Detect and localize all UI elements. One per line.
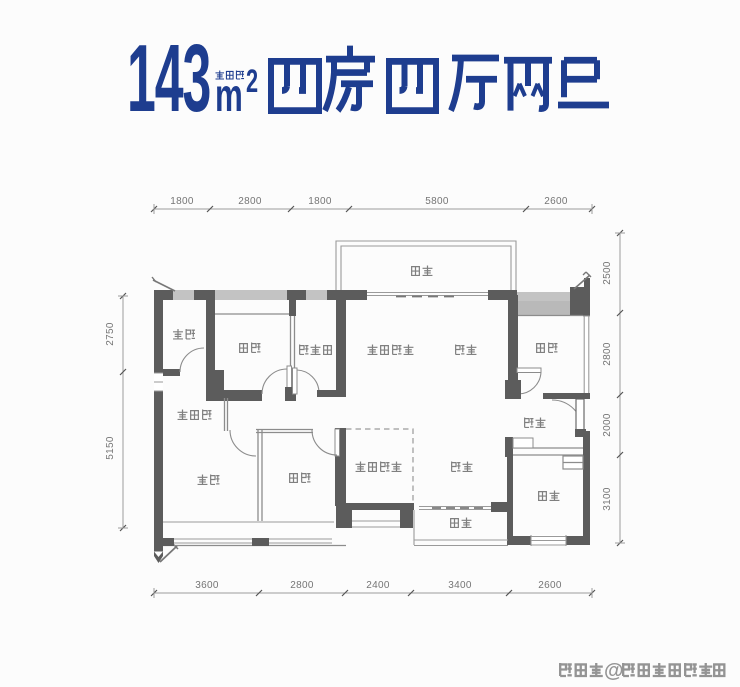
svg-text:2750: 2750 <box>105 322 116 346</box>
svg-text:2800: 2800 <box>290 580 314 591</box>
svg-text:143: 143 <box>127 25 210 132</box>
svg-text:1800: 1800 <box>170 196 194 207</box>
svg-text:3100: 3100 <box>602 487 613 511</box>
svg-text:@: @ <box>604 660 624 682</box>
svg-text:1800: 1800 <box>308 196 332 207</box>
svg-text:2600: 2600 <box>538 580 562 591</box>
svg-text:2000: 2000 <box>602 413 613 437</box>
svg-text:2800: 2800 <box>238 196 262 207</box>
svg-text:3600: 3600 <box>195 580 219 591</box>
svg-text:5800: 5800 <box>425 196 449 207</box>
svg-text:3400: 3400 <box>448 580 472 591</box>
svg-text:2400: 2400 <box>366 580 390 591</box>
svg-text:2: 2 <box>246 63 258 99</box>
svg-text:m: m <box>215 70 243 121</box>
svg-text:2500: 2500 <box>602 261 613 285</box>
svg-text:2800: 2800 <box>602 342 613 366</box>
svg-text:5150: 5150 <box>105 436 116 460</box>
svg-text:2600: 2600 <box>544 196 568 207</box>
